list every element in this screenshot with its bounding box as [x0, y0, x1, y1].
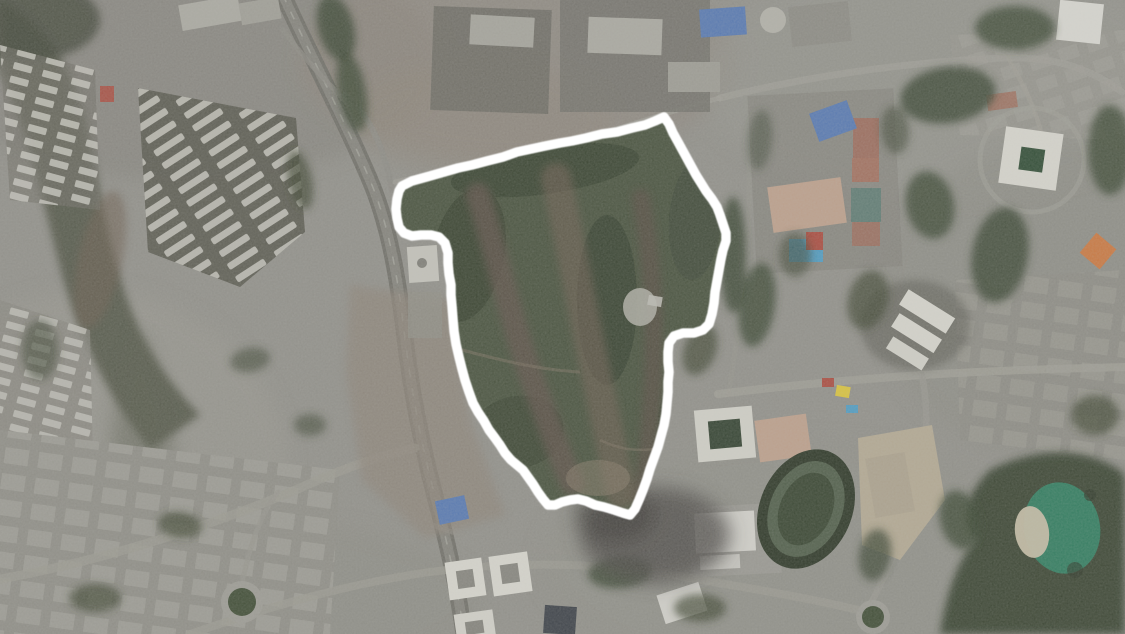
satellite-map [0, 0, 1125, 634]
satellite-map-screenshot [0, 0, 1125, 634]
image-grain [0, 0, 1125, 634]
